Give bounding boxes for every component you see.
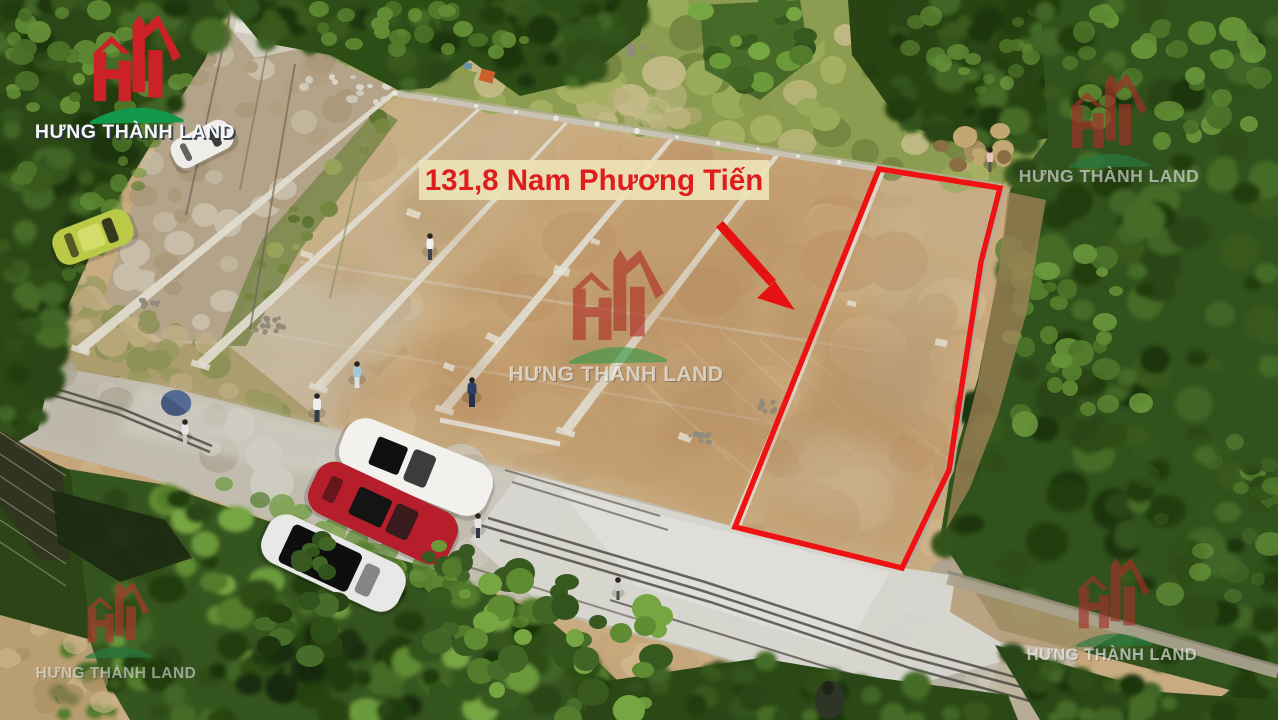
svg-text:HƯNG THÀNH LAND: HƯNG THÀNH LAND — [1027, 645, 1198, 664]
svg-text:HƯNG THÀNH LAND: HƯNG THÀNH LAND — [1019, 165, 1199, 186]
svg-text:131,8 Nam Phương Tiến: 131,8 Nam Phương Tiến — [425, 164, 764, 197]
svg-text:HƯNG THÀNH LAND: HƯNG THÀNH LAND — [508, 363, 723, 386]
svg-text:HƯNG THÀNH LAND: HƯNG THÀNH LAND — [35, 120, 235, 143]
svg-text:HƯNG THÀNH LAND: HƯNG THÀNH LAND — [36, 665, 197, 682]
